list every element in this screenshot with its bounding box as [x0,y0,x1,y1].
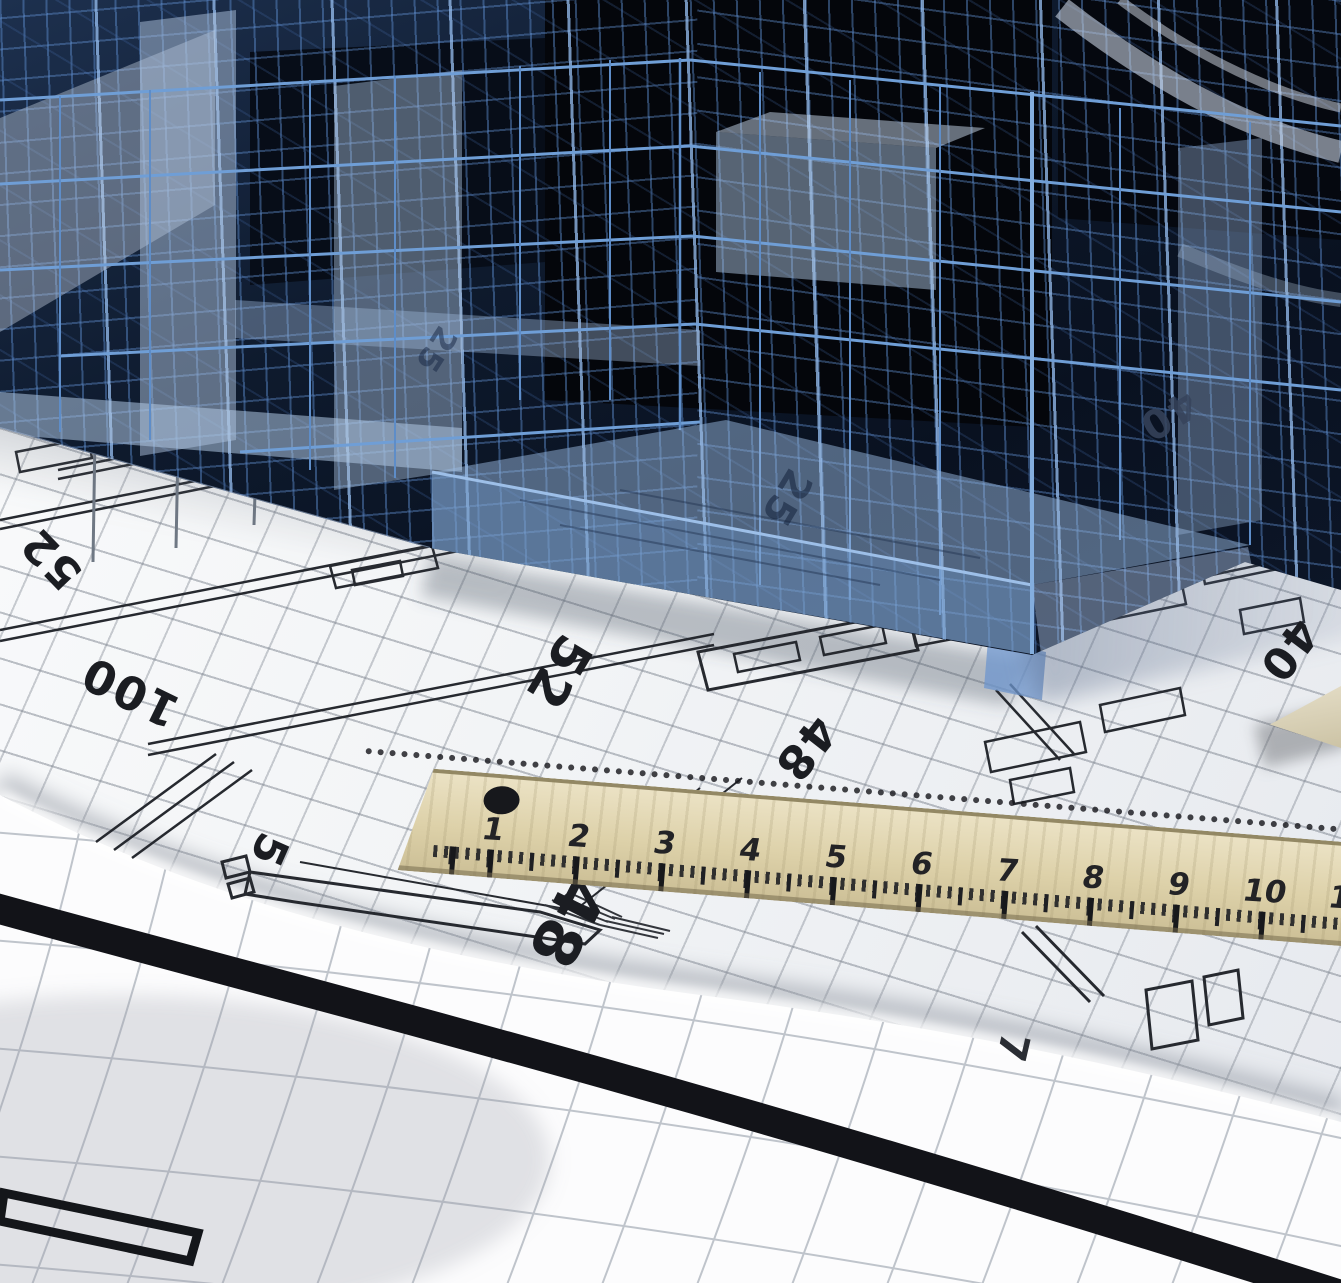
ruler-number-8: 8 [1079,860,1108,897]
ruler-number-4: 4 [736,832,765,869]
ruler-number-9: 9 [1165,866,1194,903]
ruler-number-6: 6 [907,846,936,883]
ruler-number-5: 5 [822,839,851,876]
blueprint-scene: 25 25 52 100 52 48 40 40 5 48 7 1 2 3 4 … [0,0,1341,1283]
ruler-number-7: 7 [993,853,1022,890]
ruler-number-11: 11 [1325,880,1341,918]
ruler-number-1: 1 [479,811,508,848]
ruler-number-10: 10 [1239,873,1289,911]
ruler-number-2: 2 [564,818,593,855]
ruler-number-3: 3 [650,825,679,862]
